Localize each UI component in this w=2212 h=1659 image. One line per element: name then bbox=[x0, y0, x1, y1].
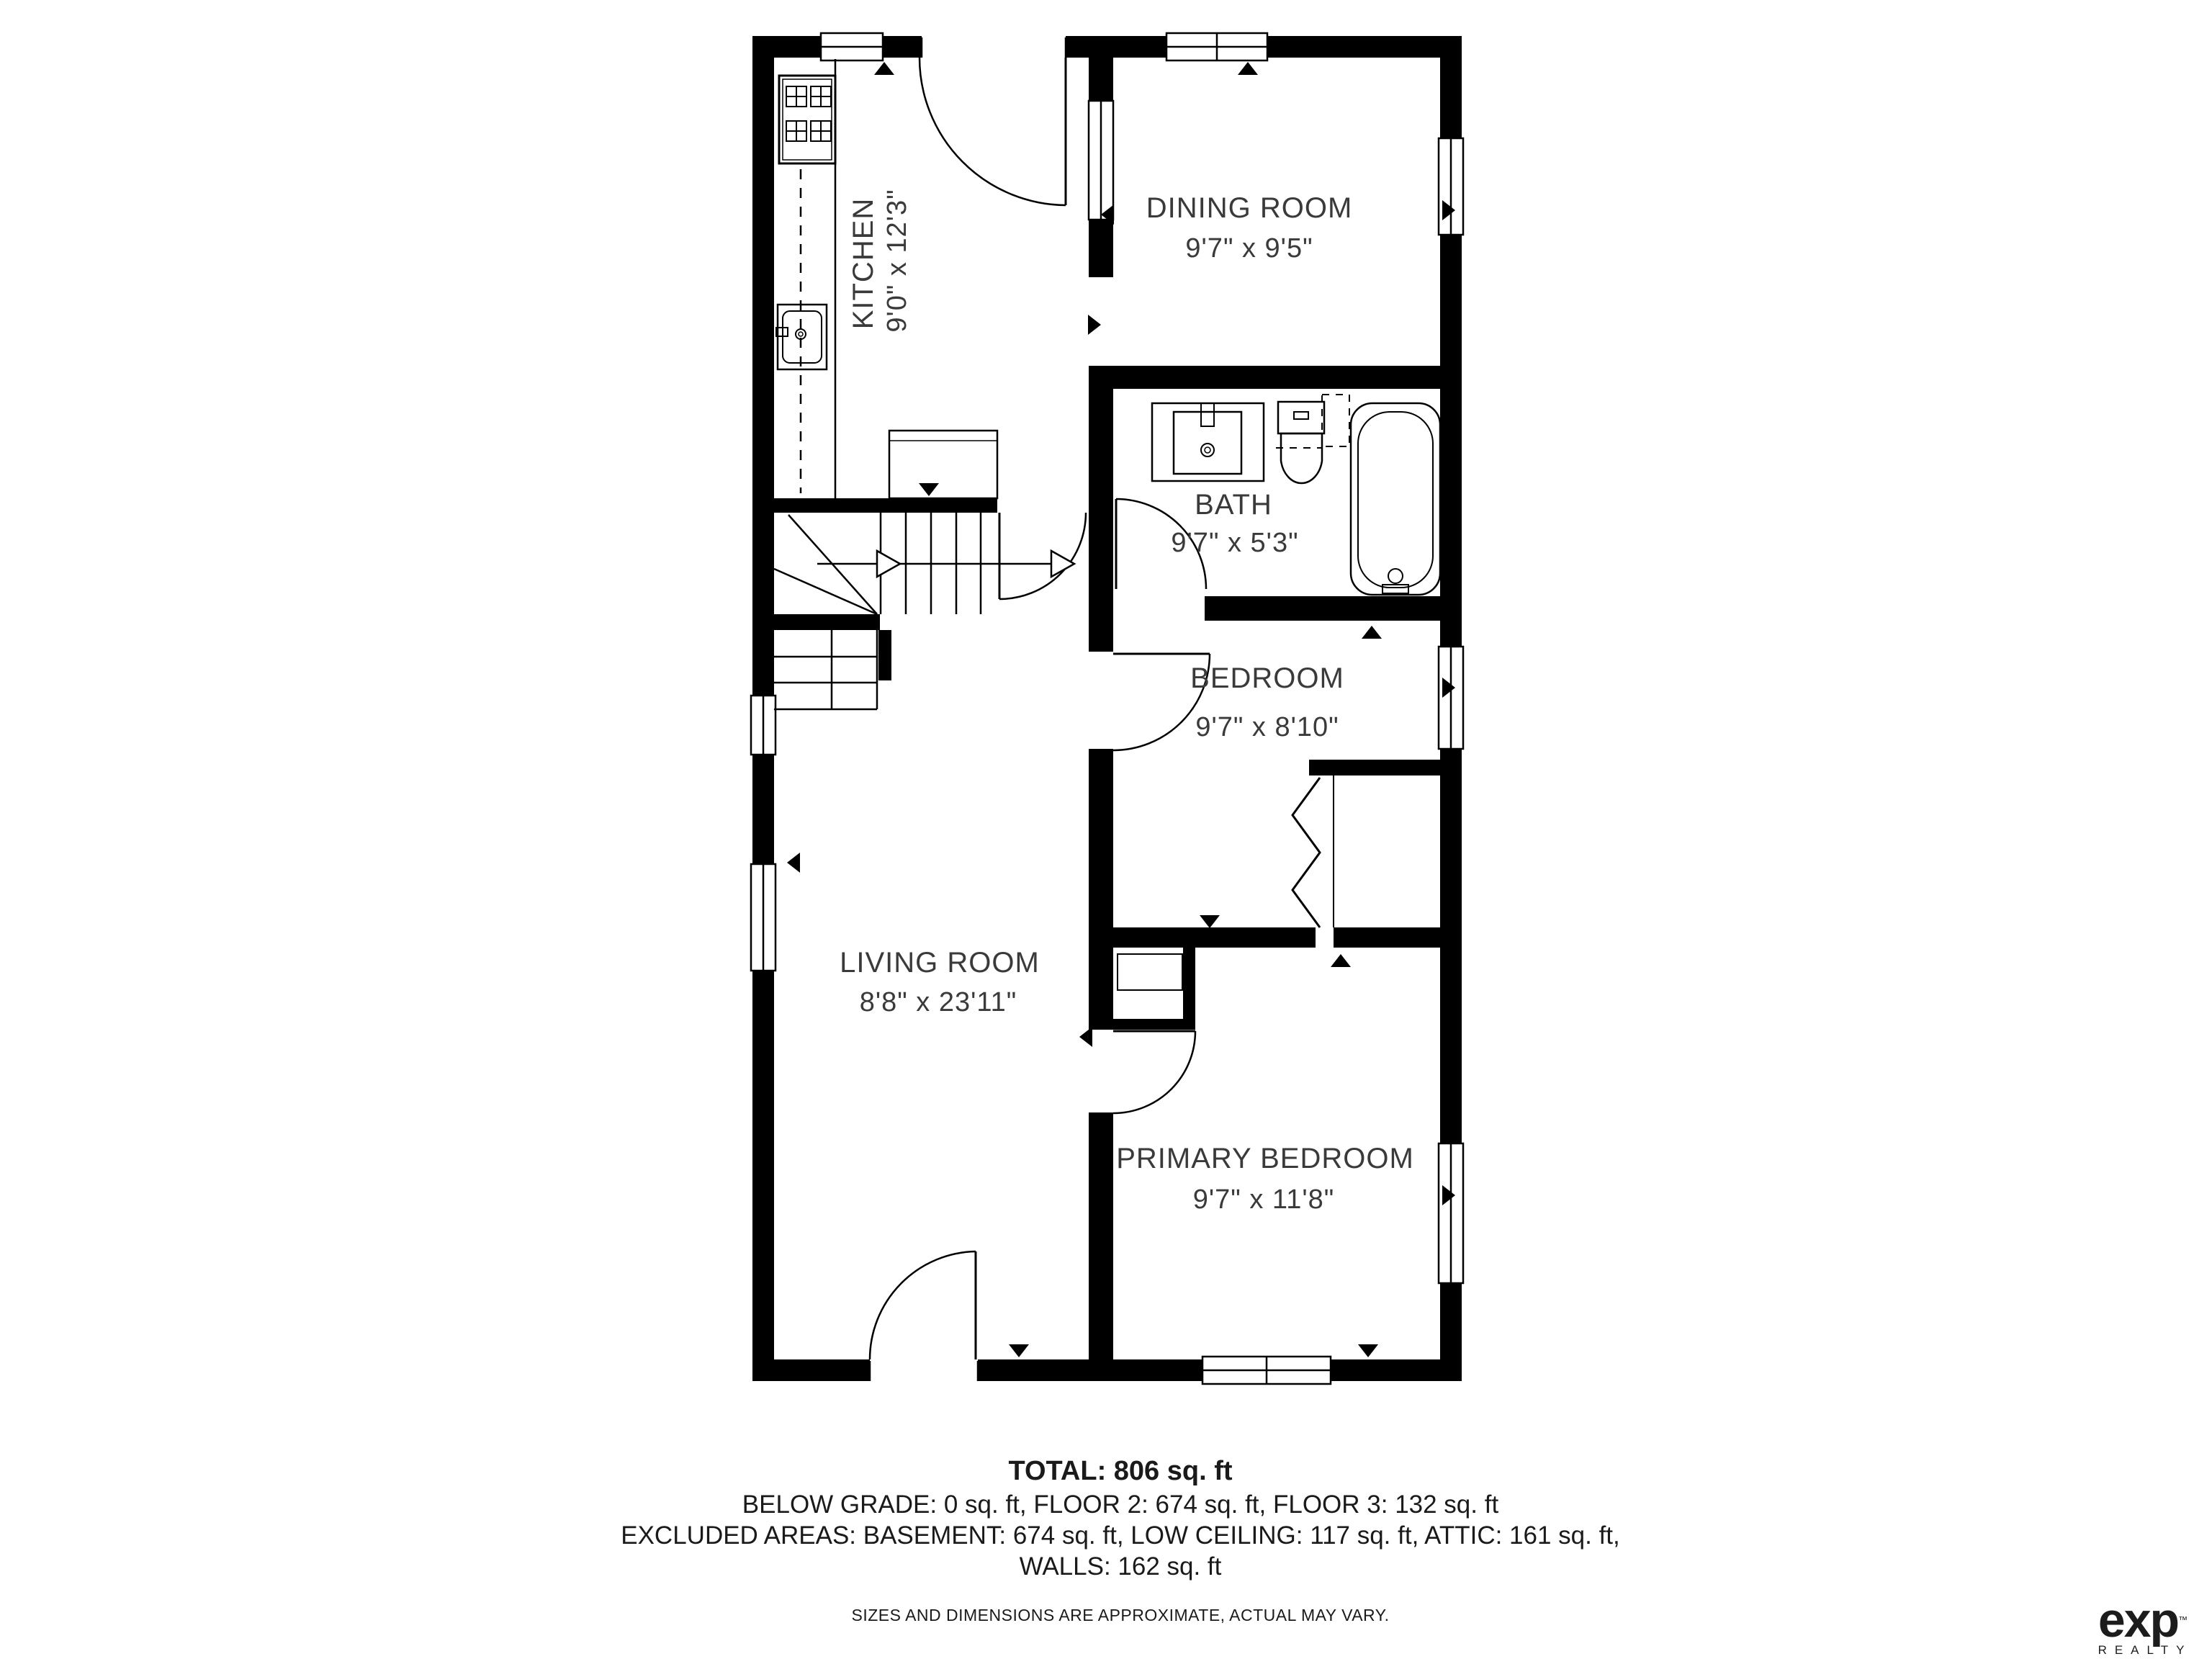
arrow-down-icon bbox=[1358, 1344, 1378, 1357]
kitchen-pass-through-window bbox=[1089, 101, 1113, 220]
arrow-left-icon bbox=[1079, 1027, 1092, 1047]
walls-area-text: WALLS: 162 sq. ft bbox=[0, 1552, 2212, 1581]
closets bbox=[1118, 775, 1334, 990]
dining-top-window bbox=[1166, 33, 1267, 60]
room-label-kitchen: KITCHEN bbox=[848, 198, 879, 330]
bathtub-icon bbox=[1351, 403, 1440, 595]
room-dims-kitchen: 9'0" x 12'3" bbox=[882, 189, 912, 332]
excluded-areas-text: EXCLUDED AREAS: BASEMENT: 674 sq. ft, LO… bbox=[0, 1521, 2212, 1550]
room-label-bath: BATH bbox=[1195, 489, 1272, 521]
room-dims-bath: 9'7" x 5'3" bbox=[1171, 528, 1298, 558]
doors bbox=[870, 36, 1210, 1381]
primary-bottom-window bbox=[1202, 1357, 1331, 1384]
bath-vanity-icon bbox=[1152, 403, 1264, 481]
floor-plan-page: KITCHEN 9'0" x 12'3" DINING ROOM 9'7" x … bbox=[0, 0, 2212, 1659]
arrow-up-icon bbox=[874, 62, 894, 75]
arrow-right-icon bbox=[1088, 315, 1101, 335]
room-dims-bedroom: 9'7" x 8'10" bbox=[1195, 712, 1339, 742]
arrow-up-icon bbox=[1238, 62, 1258, 75]
exp-realty-logo: exp™ REALTY bbox=[2081, 1599, 2203, 1658]
bedroom-closet bbox=[1292, 775, 1334, 927]
logo-trademark: ™ bbox=[2178, 1614, 2186, 1625]
kitchen-top-door bbox=[920, 36, 1066, 205]
room-label-bedroom: BEDROOM bbox=[1190, 662, 1344, 694]
primary-closet-shelf bbox=[1118, 954, 1182, 990]
logo-name: exp bbox=[2098, 1593, 2178, 1647]
floor-plan: KITCHEN 9'0" x 12'3" DINING ROOM 9'7" x … bbox=[0, 0, 2212, 1659]
room-label-primary-bedroom: PRIMARY BEDROOM bbox=[1116, 1143, 1414, 1174]
logo-subtitle: REALTY bbox=[2081, 1643, 2203, 1658]
toilet-icon bbox=[1278, 402, 1324, 483]
arrow-up-icon bbox=[1362, 626, 1382, 639]
kitchen-window bbox=[821, 33, 883, 60]
stair-hall-door bbox=[999, 513, 1086, 599]
floor-areas-text: BELOW GRADE: 0 sq. ft, FLOOR 2: 674 sq. … bbox=[0, 1491, 2212, 1519]
staircase bbox=[774, 513, 1074, 709]
primary-right-window bbox=[1439, 1143, 1463, 1283]
stove-icon bbox=[779, 76, 835, 163]
arrow-down-icon bbox=[919, 483, 939, 496]
disclaimer-text: SIZES AND DIMENSIONS ARE APPROXIMATE, AC… bbox=[0, 1606, 2212, 1625]
room-label-living-room: LIVING ROOM bbox=[840, 947, 1040, 979]
room-dims-primary-bedroom: 9'7" x 11'8" bbox=[1193, 1184, 1334, 1215]
arrow-down-icon bbox=[1200, 915, 1220, 928]
room-labels: KITCHEN 9'0" x 12'3" DINING ROOM 9'7" x … bbox=[840, 189, 1414, 1215]
total-area-text: TOTAL: 806 sq. ft bbox=[0, 1456, 2212, 1487]
primary-door bbox=[1113, 1031, 1195, 1113]
living-left-window-lower bbox=[751, 864, 775, 971]
bedroom-window bbox=[1439, 647, 1463, 749]
front-door bbox=[870, 1251, 978, 1381]
room-label-dining-room: DINING ROOM bbox=[1146, 192, 1353, 224]
arrow-up-icon bbox=[1331, 954, 1351, 967]
arrow-left-icon bbox=[787, 853, 800, 873]
stair-arrowhead bbox=[1051, 551, 1074, 577]
stair-arrowhead bbox=[877, 551, 900, 577]
room-dims-dining-room: 9'7" x 9'5" bbox=[1185, 233, 1313, 264]
room-dims-living-room: 8'8" x 23'11" bbox=[860, 987, 1017, 1017]
kitchen-peninsula bbox=[889, 431, 997, 498]
arrow-down-icon bbox=[1009, 1344, 1029, 1357]
living-left-window-upper bbox=[751, 696, 775, 755]
